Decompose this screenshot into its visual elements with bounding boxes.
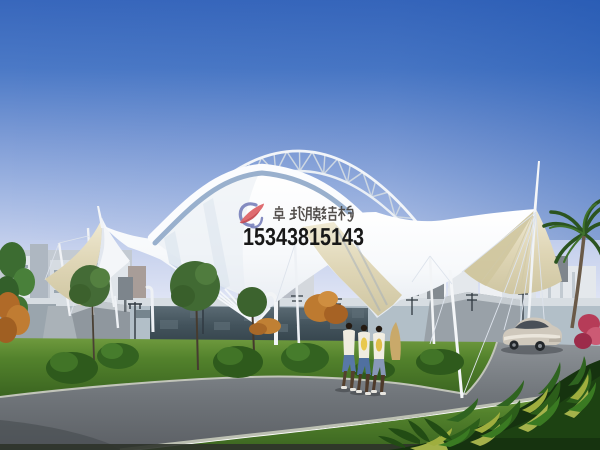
svg-text:15343815143: 15343815143: [243, 224, 364, 251]
